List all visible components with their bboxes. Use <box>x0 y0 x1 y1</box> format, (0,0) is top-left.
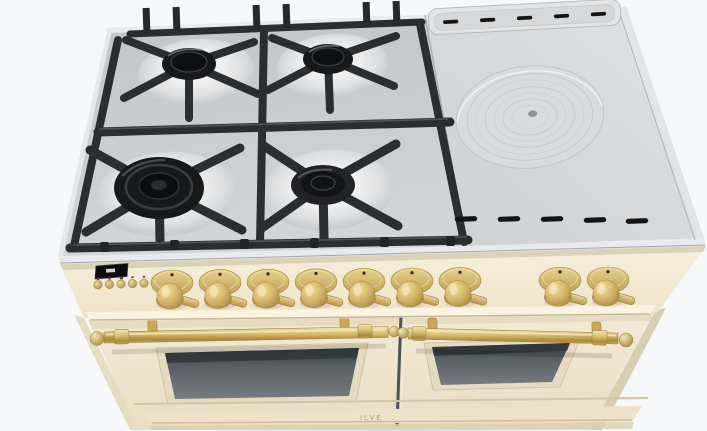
brand-logo: ILVE <box>360 415 383 422</box>
vent-slot <box>480 18 495 23</box>
display-button <box>105 280 113 288</box>
burner-front-right <box>291 165 355 205</box>
button-icon <box>131 276 133 278</box>
button-icon <box>120 277 123 279</box>
vent-slot <box>517 16 532 21</box>
product-image-range-cooker: ILVE <box>0 0 707 431</box>
button-icon <box>97 278 99 280</box>
clock-display <box>95 264 128 280</box>
range-cooker-render: ILVE <box>0 0 707 431</box>
display-button <box>117 280 125 288</box>
vent-slot <box>554 14 569 19</box>
cooktop <box>58 0 706 264</box>
vent-slot <box>584 217 607 223</box>
oven-cabinet: ILVE <box>74 308 666 430</box>
burner-front-left-wok <box>114 157 204 219</box>
vent-slot <box>541 216 564 222</box>
oven-window-right <box>424 339 580 390</box>
handle-finial <box>619 333 633 347</box>
button-icon <box>143 276 145 278</box>
handle-finial <box>90 332 104 346</box>
display-button <box>94 281 102 289</box>
display-digits <box>106 269 115 273</box>
vent-slot <box>591 12 606 17</box>
vent-slot <box>455 216 478 222</box>
handle-finial <box>398 328 409 339</box>
burner-back-right <box>303 44 353 74</box>
burner-back-left <box>162 48 216 80</box>
vent-slot <box>443 20 458 25</box>
button-icon <box>108 277 110 279</box>
display-button <box>140 279 148 287</box>
vent-slot <box>626 218 649 224</box>
vent-slot <box>498 216 521 222</box>
display-button <box>128 279 136 287</box>
